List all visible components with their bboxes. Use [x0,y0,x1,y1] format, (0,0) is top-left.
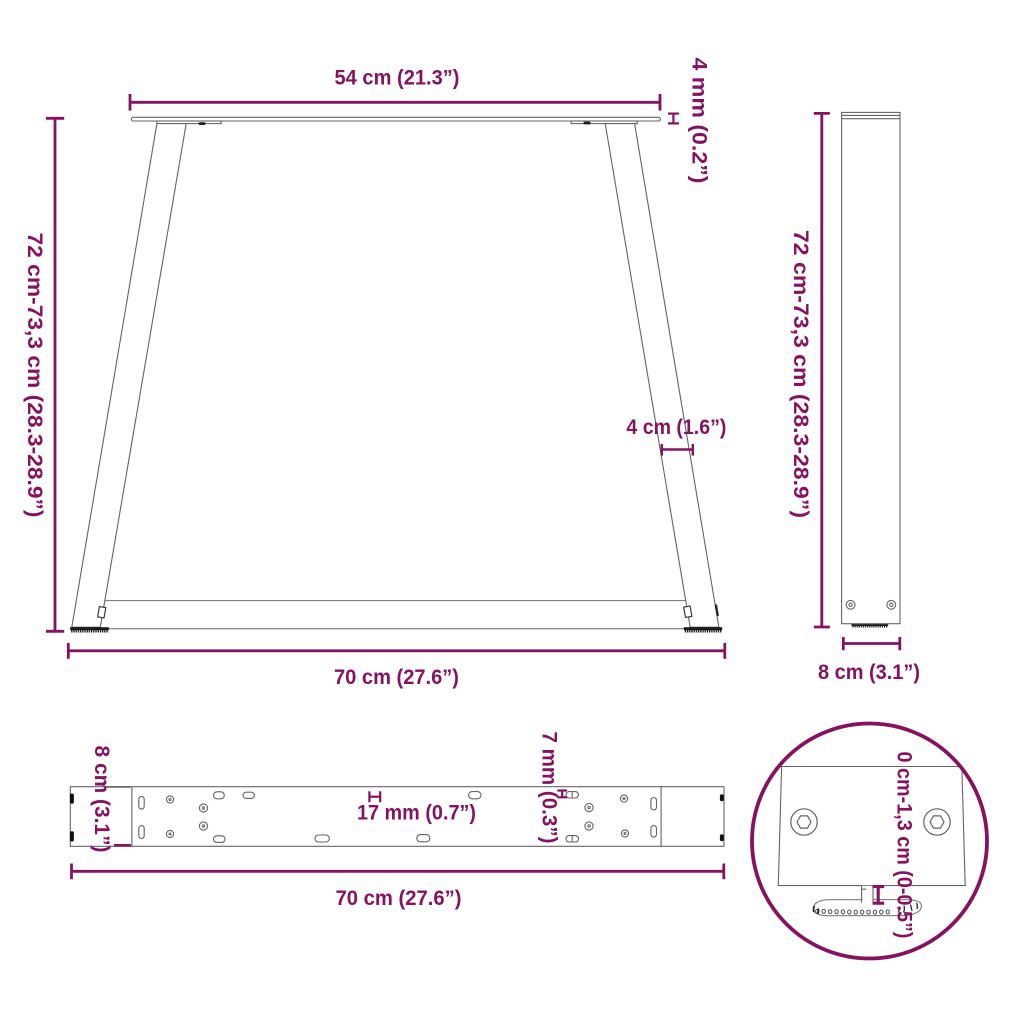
svg-text:8 cm (3.1”): 8 cm (3.1”) [90,746,114,853]
svg-text:7 mm (0.3”): 7 mm (0.3”) [538,732,562,844]
svg-text:70 cm (27.6”): 70 cm (27.6”) [334,665,459,689]
svg-text:17 mm (0.7”): 17 mm (0.7”) [357,801,476,825]
svg-text:70 cm (27.6”): 70 cm (27.6”) [336,886,462,910]
svg-text:4 mm (0.2”): 4 mm (0.2”) [688,58,712,184]
svg-text:8 cm (3.1”): 8 cm (3.1”) [818,660,920,684]
svg-text:0 cm-1,3 cm (0-0.5”): 0 cm-1,3 cm (0-0.5”) [893,752,917,939]
svg-text:54 cm (21.3”): 54 cm (21.3”) [335,66,460,90]
svg-text:72 cm-73,3 cm (28.3-28.9”): 72 cm-73,3 cm (28.3-28.9”) [23,233,47,518]
svg-text:72 cm-73,3 cm (28.3-28.9”): 72 cm-73,3 cm (28.3-28.9”) [789,230,813,518]
svg-text:4 cm (1.6”): 4 cm (1.6”) [626,415,726,439]
